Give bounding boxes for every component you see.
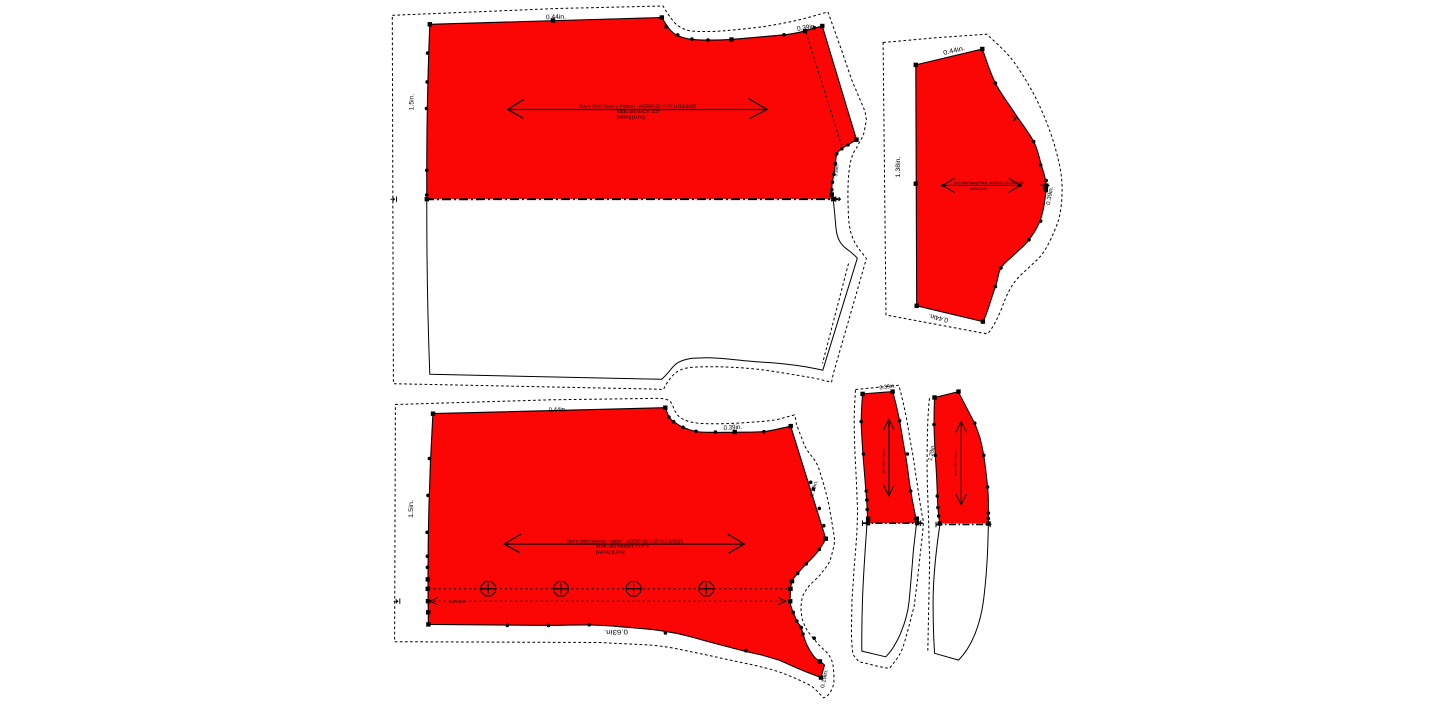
svg-text:1.5in.: 1.5in.	[409, 94, 416, 111]
svg-text:0.44in.: 0.44in.	[546, 14, 566, 22]
svg-text:Boy's Shirt Sewing Pattern - A: Boy's Shirt Sewing Pattern - A/2005-22-V…	[954, 181, 1024, 185]
svg-text:[W0%] [L0%]: [W0%] [L0%]	[596, 550, 625, 555]
svg-text:1.38in.: 1.38in.	[895, 156, 902, 177]
svg-text:[W0%] [L0%]: [W0%] [L0%]	[617, 114, 645, 119]
svg-text:BUTTONS: BUTTONS	[449, 600, 465, 604]
svg-text:0.44in.: 0.44in.	[928, 312, 949, 323]
svg-text:0.44in.: 0.44in.	[549, 406, 567, 414]
svg-text:1.5in.: 1.5in.	[408, 500, 415, 518]
svg-text:[W0%] [L0%]: [W0%] [L0%]	[970, 187, 987, 191]
svg-text:0.63in.: 0.63in.	[604, 628, 628, 636]
svg-text:SIZE=3/4 BACK CUT: SIZE=3/4 BACK CUT	[617, 109, 661, 114]
svg-text:Boy's Shirt Sewing Pattern - A: Boy's Shirt Sewing Pattern - A/2005-22-V…	[567, 538, 684, 543]
svg-text:Boy's Shirt Pattern: Boy's Shirt Pattern	[954, 450, 958, 475]
svg-text:Boy's Shirt Pattern: Boy's Shirt Pattern	[882, 448, 886, 473]
svg-text:SIZE=3/4 FRONT CUT 2: SIZE=3/4 FRONT CUT 2	[596, 544, 649, 549]
svg-text:Boy's Shirt Sewing Pattern - A: Boy's Shirt Sewing Pattern - A/2005-22-V…	[579, 104, 696, 109]
